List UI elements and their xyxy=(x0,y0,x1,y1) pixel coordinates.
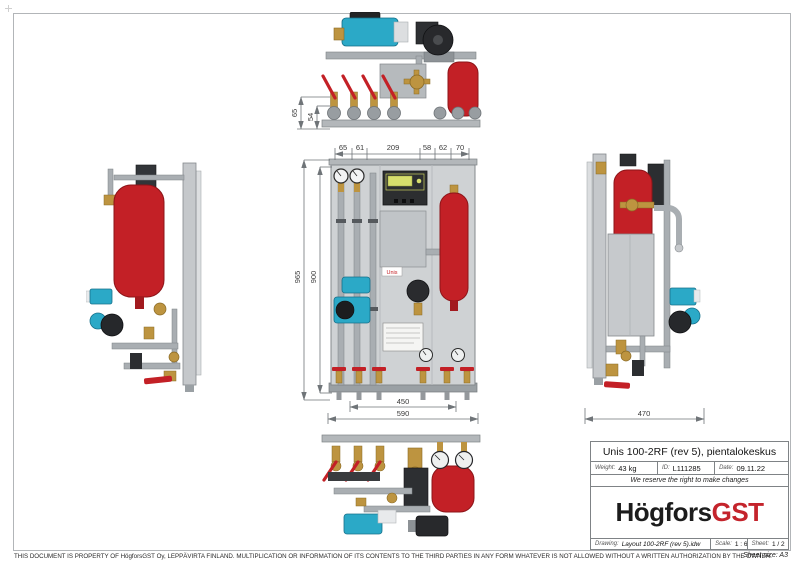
drawing-sheet: Unis xyxy=(0,0,800,566)
sheet-label: Sheet: xyxy=(752,541,769,547)
dim-chain-2: 209 xyxy=(387,143,400,152)
id-value: L111285 xyxy=(673,464,701,473)
ownership-disclaimer: THIS DOCUMENT IS PROPERTY OF HögforsGST … xyxy=(14,553,772,560)
rights-notice: We reserve the right to make changes xyxy=(591,475,788,487)
dim-front-height-inner: 900 xyxy=(309,271,318,284)
scale-value: 1 : 6 xyxy=(735,541,748,548)
drawing-label: Drawing: xyxy=(595,541,619,547)
drawing-value: Layout 100-2RF (rev 5).idw xyxy=(622,541,701,548)
sheet-value: 1 / 2 xyxy=(772,541,785,548)
id-cell: ID: L111285 xyxy=(658,462,715,474)
date-value: 09.11.22 xyxy=(736,464,765,473)
sheet-cell: Sheet: 1 / 2 xyxy=(748,539,788,549)
title-block: Unis 100-2RF (rev 5), pientalokeskus Wei… xyxy=(590,441,789,550)
logo-text-hogfors: Högfors xyxy=(615,497,711,528)
dim-chain-1: 61 xyxy=(356,143,364,152)
dim-front-height-outer: 965 xyxy=(293,271,302,284)
dim-chain-4: 62 xyxy=(439,143,447,152)
scale-label: Scale: xyxy=(715,541,732,547)
company-logo: HögforsGST xyxy=(591,487,788,538)
weight-label: Weight: xyxy=(595,465,615,471)
dim-front-width-outer: 590 xyxy=(397,409,410,418)
dim-chain-3: 58 xyxy=(423,143,431,152)
dim-top-left-inner: 54 xyxy=(306,113,315,121)
sheet-size-note: Sheet size: A3 xyxy=(714,552,788,559)
title-block-info-row: Weight: 43 kg ID: L111285 Date: 09.11.22 xyxy=(591,462,788,475)
scale-cell: Scale: 1 : 6 xyxy=(711,539,747,549)
dim-front-width-inner: 450 xyxy=(397,397,410,406)
id-label: ID: xyxy=(662,465,670,471)
dim-right-width: 470 xyxy=(638,409,651,418)
dim-chain-0: 65 xyxy=(339,143,347,152)
dim-chain-5: 70 xyxy=(456,143,464,152)
weight-cell: Weight: 43 kg xyxy=(591,462,658,474)
drawing-file-cell: Drawing: Layout 100-2RF (rev 5).idw xyxy=(591,539,711,549)
weight-value: 43 kg xyxy=(618,464,636,473)
date-label: Date: xyxy=(719,465,733,471)
drawing-title: Unis 100-2RF (rev 5), pientalokeskus xyxy=(591,442,788,462)
dim-top-left-outer: 65 xyxy=(290,109,299,117)
date-cell: Date: 09.11.22 xyxy=(715,462,788,474)
title-block-bottom-row: Drawing: Layout 100-2RF (rev 5).idw Scal… xyxy=(591,538,788,549)
logo-text-gst: GST xyxy=(712,497,764,528)
